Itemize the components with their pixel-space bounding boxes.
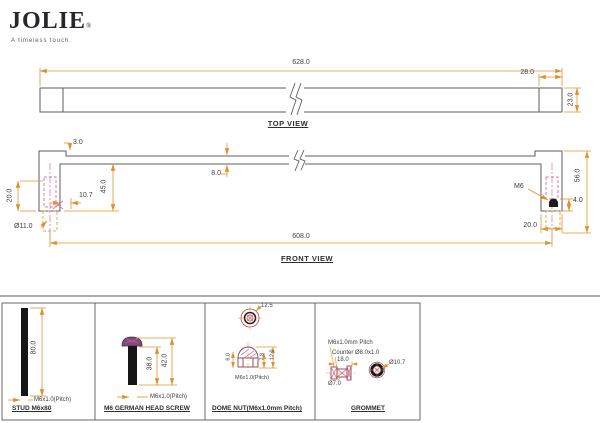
screw-dim-total: 42.0 xyxy=(162,346,169,376)
stud-dim-length: 80.0 xyxy=(31,333,38,363)
grommet-title: GROMMET xyxy=(351,406,385,413)
registered-mark: ® xyxy=(86,22,92,30)
top-view-drawing xyxy=(40,83,562,115)
brand-name: JOLIE xyxy=(9,8,86,34)
dim-span: 608.0 xyxy=(281,233,321,240)
screw-dim-shaft: 38.0 xyxy=(147,349,154,379)
brand-tagline: A timeless touch. xyxy=(11,38,72,44)
grommet-dim-width: 18.0 xyxy=(337,357,349,363)
screw-pitch-label: M6x1.0(Pitch) xyxy=(150,394,187,400)
dim-nut-height: 4.0 xyxy=(573,197,583,204)
dim-step: 3.0 xyxy=(73,139,83,146)
front-view-hole-outlines xyxy=(43,211,560,231)
dim-left-depth: 20.0 xyxy=(7,181,14,211)
dim-total-height: 56.0 xyxy=(575,161,582,191)
dim-hole-dia: Ø11.0 xyxy=(14,223,33,230)
front-view-label: FRONT VIEW xyxy=(274,255,340,263)
dim-leg-width: 20.0 xyxy=(507,222,537,229)
grommet-dim-outer-dia: Ø10.7 xyxy=(389,360,405,366)
details-table-borders xyxy=(0,296,600,420)
grommet-dim-small-dia: Ø7.0 xyxy=(328,381,341,387)
nut-dim-width: 6.0 xyxy=(226,345,232,369)
front-view-hidden-lines xyxy=(44,163,558,241)
stud-title: STUD M6x80 xyxy=(12,406,51,413)
nut-title: DOME NUT(M6x1.0mm Pitch) xyxy=(212,406,302,413)
stud-drawing xyxy=(8,308,46,400)
brand-logo: JOLIE® xyxy=(9,8,92,35)
thread-label: M6 xyxy=(514,183,524,190)
stud-pitch-label: M6x1.0(Pitch) xyxy=(34,397,71,403)
screw-title: M6 GERMAN HEAD SCREW xyxy=(104,406,190,413)
top-view-label: TOP VIEW xyxy=(260,120,316,128)
dim-total-length: 628.0 xyxy=(281,59,321,66)
dim-end-cap: 28.0 xyxy=(494,69,534,76)
drawing-sheet: JOLIE® A timeless touch. 628.0 28.0 23.0… xyxy=(0,0,600,423)
dim-offset: 10.7 xyxy=(79,192,93,199)
front-view-drawing xyxy=(39,150,562,211)
nut-dim-dia: 12.5 xyxy=(261,303,273,309)
dim-drop: 45.0 xyxy=(101,172,108,202)
nut-dim-height: 12.0 xyxy=(270,341,276,369)
grommet-counter-label: Counter Ø8.0x1.0 xyxy=(332,350,379,356)
nut-pitch-label: M6x1.0(Pitch) xyxy=(235,376,269,382)
nut-dim-body: 7.8 xyxy=(260,345,266,369)
grommet-pitch-label: M6x1.0mm Pitch xyxy=(328,340,373,346)
dim-bar-thickness: 8.0 xyxy=(203,170,221,177)
dim-bar-height: 23.0 xyxy=(568,87,575,113)
